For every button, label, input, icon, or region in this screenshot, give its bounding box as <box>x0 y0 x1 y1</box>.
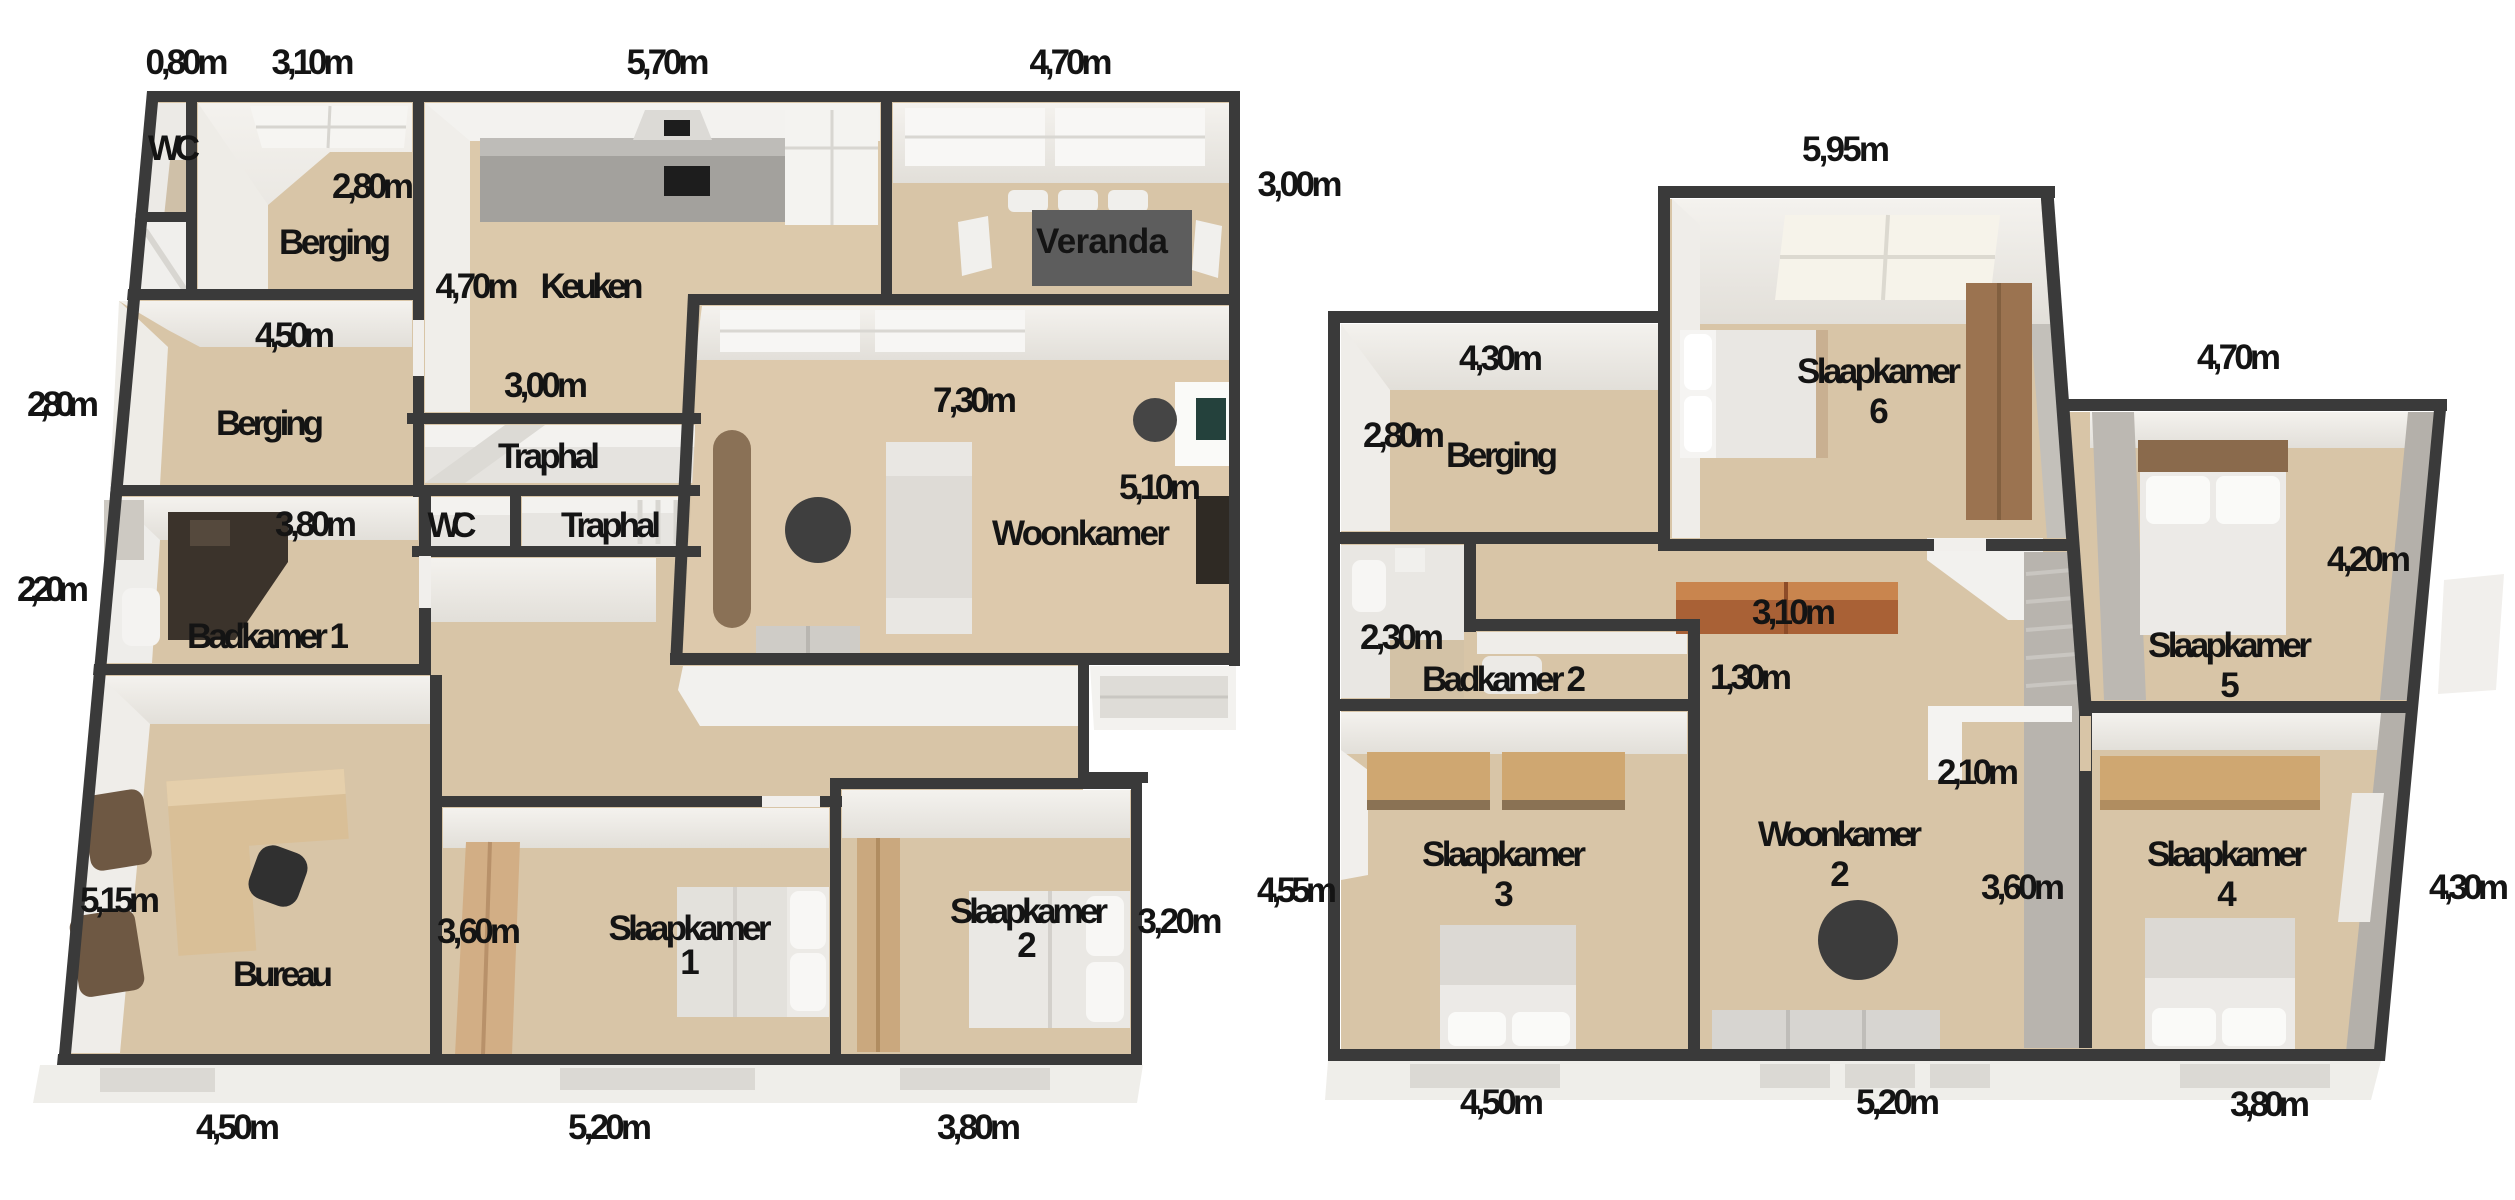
svg-text:2,80m: 2,80m <box>27 385 99 424</box>
svg-text:3,60m: 3,60m <box>1981 868 2065 907</box>
svg-text:3: 3 <box>1494 875 1513 914</box>
svg-text:2,20m: 2,20m <box>17 570 89 609</box>
svg-text:2,30m: 2,30m <box>1360 618 1444 657</box>
svg-text:4,50m: 4,50m <box>1460 1083 1544 1122</box>
svg-text:4,70m: 4,70m <box>1030 43 1113 82</box>
svg-text:4,50m: 4,50m <box>255 316 335 355</box>
svg-text:Bureau: Bureau <box>233 955 333 994</box>
svg-text:2: 2 <box>1830 855 1849 894</box>
svg-text:6: 6 <box>1869 392 1888 431</box>
svg-text:5: 5 <box>2220 666 2239 705</box>
svg-text:4,55m: 4,55m <box>1257 871 1337 910</box>
svg-text:Veranda: Veranda <box>1036 222 1169 261</box>
svg-text:5,15m: 5,15m <box>80 881 160 920</box>
svg-text:3,60m: 3,60m <box>437 912 521 951</box>
svg-text:3,80m: 3,80m <box>937 1108 1021 1147</box>
svg-text:3,20m: 3,20m <box>1138 902 1223 941</box>
svg-text:4,70m: 4,70m <box>2197 338 2281 377</box>
svg-text:WC: WC <box>428 506 477 545</box>
svg-text:WC: WC <box>148 129 200 168</box>
svg-text:5,95m: 5,95m <box>1802 130 1890 169</box>
svg-text:Woonkamer: Woonkamer <box>992 514 1170 553</box>
svg-text:Traphal: Traphal <box>498 437 600 476</box>
svg-text:4,30m: 4,30m <box>1459 339 1543 378</box>
svg-text:3,10m: 3,10m <box>1752 593 1836 632</box>
svg-text:Slaapkamer: Slaapkamer <box>1422 835 1586 874</box>
svg-text:4,20m: 4,20m <box>2327 540 2411 579</box>
svg-text:2,80m: 2,80m <box>332 167 414 206</box>
svg-text:3,80m: 3,80m <box>275 505 357 544</box>
svg-text:Berging: Berging <box>216 404 324 443</box>
svg-text:Berging: Berging <box>1446 436 1558 475</box>
svg-text:3,00m: 3,00m <box>504 366 588 405</box>
svg-text:2,80m: 2,80m <box>1363 416 1445 455</box>
svg-text:4,70m: 4,70m <box>436 267 519 306</box>
svg-text:5,20m: 5,20m <box>1856 1083 1940 1122</box>
svg-text:5,70m: 5,70m <box>627 43 710 82</box>
svg-text:Traphal: Traphal <box>561 506 661 545</box>
svg-text:Slaapkamer: Slaapkamer <box>2148 626 2312 665</box>
svg-text:Berging: Berging <box>279 223 391 262</box>
svg-text:5,20m: 5,20m <box>568 1108 652 1147</box>
svg-text:4,30m: 4,30m <box>2429 868 2509 907</box>
svg-text:3,10m: 3,10m <box>272 43 355 82</box>
svg-text:7,30m: 7,30m <box>933 381 1017 420</box>
svg-text:Slaapkamer: Slaapkamer <box>1797 352 1961 391</box>
svg-text:Badkamer 2: Badkamer 2 <box>1422 660 1586 699</box>
svg-text:5,10m: 5,10m <box>1119 468 1201 507</box>
svg-text:Badkamer 1: Badkamer 1 <box>187 617 349 656</box>
svg-text:Slaapkamer: Slaapkamer <box>2147 835 2307 874</box>
svg-text:Woonkamer: Woonkamer <box>1758 815 1922 854</box>
svg-text:1: 1 <box>680 943 699 982</box>
svg-text:0,80m: 0,80m <box>146 43 229 82</box>
svg-text:2: 2 <box>1017 926 1036 965</box>
svg-text:2,10m: 2,10m <box>1937 753 2019 792</box>
svg-text:4: 4 <box>2217 875 2237 914</box>
svg-text:1,30m: 1,30m <box>1710 658 1792 697</box>
svg-text:3,80m: 3,80m <box>2230 1085 2310 1124</box>
svg-text:4,50m: 4,50m <box>196 1108 280 1147</box>
svg-text:Keuken: Keuken <box>541 267 644 306</box>
svg-text:3,00m: 3,00m <box>1258 165 1343 204</box>
